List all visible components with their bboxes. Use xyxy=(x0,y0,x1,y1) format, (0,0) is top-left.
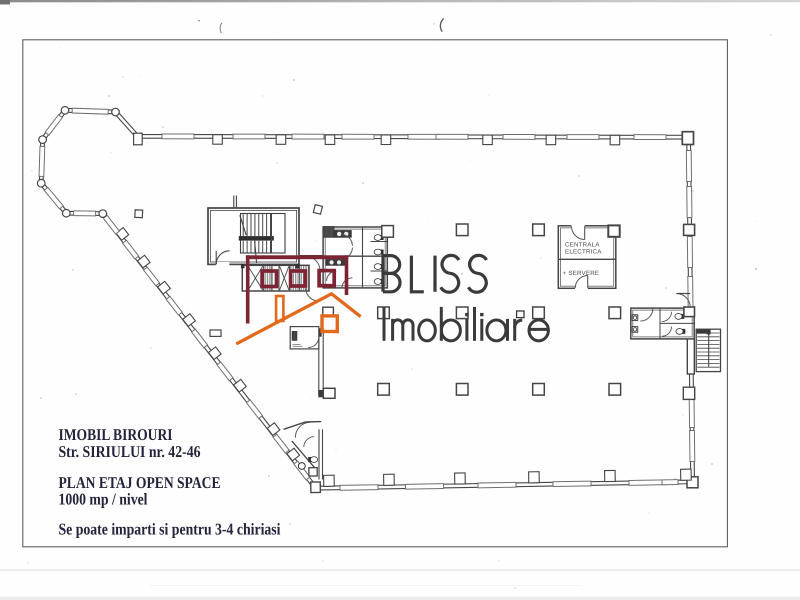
svg-text:CENTRALA: CENTRALA xyxy=(565,241,600,248)
svg-text:ELECTRICA: ELECTRICA xyxy=(565,249,602,256)
svg-text:1000 mp / nivel: 1000 mp / nivel xyxy=(59,490,148,509)
svg-text:Se poate imparti si pentru 3-4: Se poate imparti si pentru 3-4 chiriasi xyxy=(59,520,281,539)
svg-text:Str. SIRIULUI nr. 42-46: Str. SIRIULUI nr. 42-46 xyxy=(59,442,201,461)
svg-text:+ SERVERE: + SERVERE xyxy=(563,270,600,277)
